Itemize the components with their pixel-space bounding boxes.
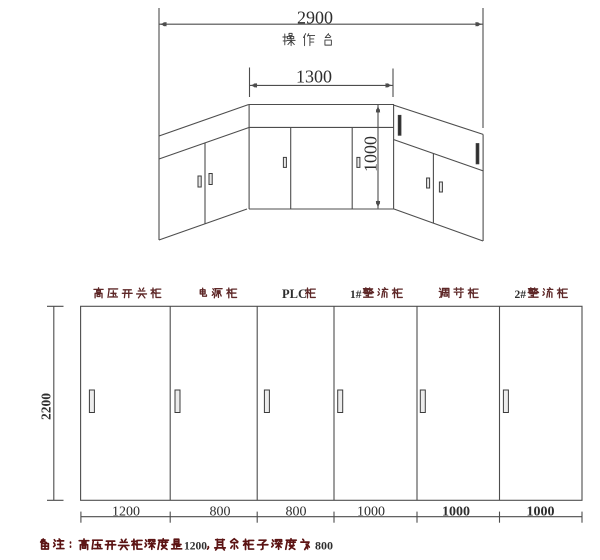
svg-text:800: 800 [210,505,231,520]
svg-text:1200: 1200 [112,505,140,520]
svg-text:1300: 1300 [296,67,332,87]
svg-text:2#: 2# [515,289,527,301]
svg-text:800: 800 [286,505,307,520]
svg-text:2200: 2200 [39,393,54,420]
svg-text:1000: 1000 [361,136,381,172]
svg-text:1000: 1000 [357,505,385,520]
svg-text:1200: 1200 [184,541,207,553]
svg-text:1#: 1# [350,289,362,301]
svg-text:PLC: PLC [282,287,307,301]
svg-text:1000: 1000 [527,505,555,520]
svg-text:1000: 1000 [442,505,470,520]
svg-text:800: 800 [315,539,333,553]
svg-text:2900: 2900 [297,8,333,28]
